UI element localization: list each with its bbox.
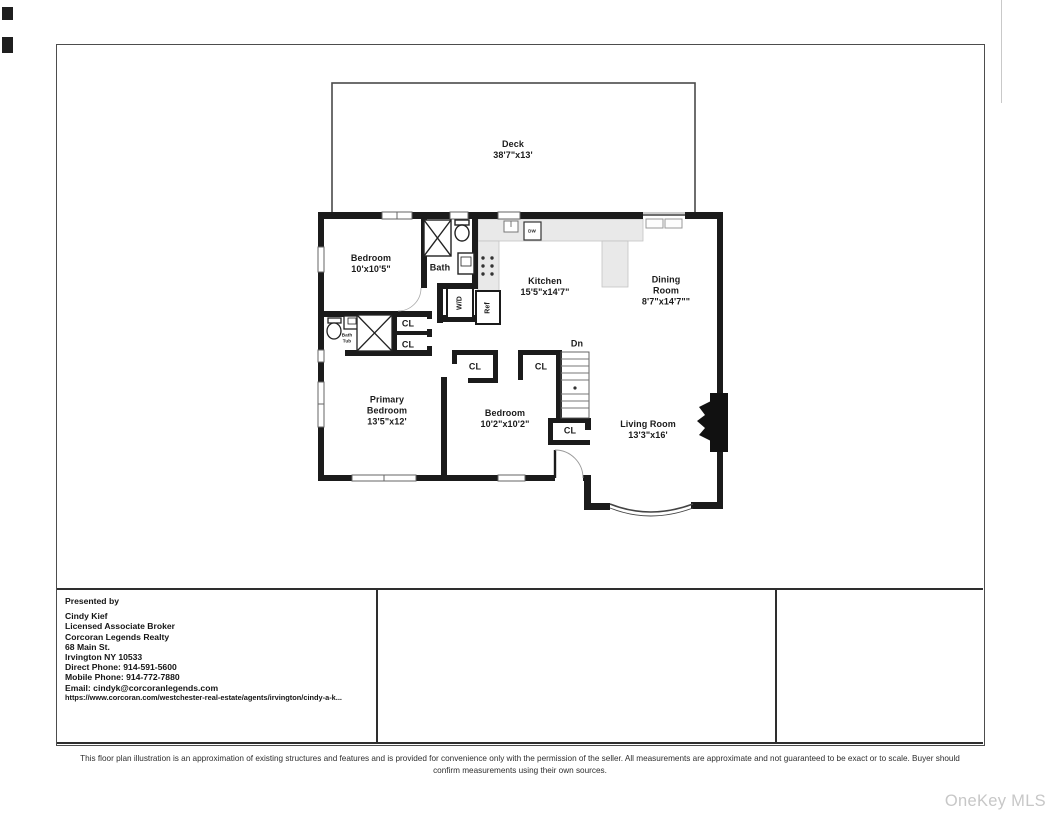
half-bath-fixtures — [327, 315, 392, 351]
bedroom1-label: Bedroom 10'x10'5" — [351, 253, 391, 275]
agent-name: Cindy Kief — [65, 611, 373, 621]
stairs-down-label: Dn — [571, 339, 583, 350]
primary-line2: Bedroom — [367, 406, 407, 417]
agent-address2: Irvington NY 10533 — [65, 652, 373, 662]
closet-label-2: CL — [402, 340, 414, 351]
agent-email: Email: cindyk@corcoranlegends.com — [65, 683, 373, 693]
disclaimer-line1: This floor plan illustration is an appro… — [56, 753, 984, 765]
fireplace — [697, 393, 728, 452]
agent-direct-phone: Direct Phone: 914-591-5600 — [65, 662, 373, 672]
agent-info-cell: Presented by Cindy Kief Licensed Associa… — [57, 588, 378, 744]
stairs — [561, 352, 589, 418]
dining-dims: 8'7"x14'7"" — [642, 297, 690, 308]
primary-dims: 13'5"x12' — [367, 417, 407, 428]
dishwasher-label: DW — [528, 226, 536, 237]
kitchen-name: Kitchen — [521, 276, 570, 287]
primary-line1: Primary — [367, 395, 407, 406]
half-bath-line1: Bath — [342, 333, 353, 339]
living-room-label: Living Room 13'3"x16' — [620, 419, 676, 441]
closet-label-5: CL — [564, 426, 576, 437]
half-bath-line2: Tub — [342, 338, 353, 344]
closet-label-3: CL — [469, 362, 481, 373]
bedroom1-dims: 10'x10'5" — [351, 264, 391, 275]
disclaimer: This floor plan illustration is an appro… — [56, 753, 984, 776]
closet-label-4: CL — [535, 362, 547, 373]
bath-label: Bath — [430, 263, 450, 274]
kitchen-label: Kitchen 15'5"x14'7" — [521, 276, 570, 298]
bedroom2-label: Bedroom 10'2"x10'2" — [481, 408, 530, 430]
title-cell: 63 Cedar Lane First Floor — [378, 588, 777, 744]
dining-line1: Dining — [642, 275, 690, 286]
agent-website: https://www.corcoran.com/westchester-rea… — [65, 693, 373, 703]
washer-dryer-label: W/D — [455, 296, 466, 310]
refrigerator-label: Ref — [483, 302, 494, 314]
bedroom2-dims: 10'2"x10'2" — [481, 419, 530, 430]
disclaimer-line2: confirm measurements using their own sou… — [56, 765, 984, 777]
dining-line2: Room — [642, 286, 690, 297]
floorplan-page: Deck 38'7"x13' Bedroom 10'x10'5" Bath Ba… — [0, 0, 1056, 816]
primary-bedroom-label: Primary Bedroom 13'5"x12' — [367, 395, 407, 428]
deck-label: Deck 38'7"x13' — [493, 139, 532, 161]
deck-dims: 38'7"x13' — [493, 150, 532, 161]
agent-company: Corcoran Legends Realty — [65, 632, 373, 642]
bedroom1-name: Bedroom — [351, 253, 391, 264]
deck-name: Deck — [493, 139, 532, 150]
page-number-cell: 1 of 2 — [777, 588, 983, 744]
half-bath-label: Bath Tub — [342, 333, 353, 344]
kitchen-dims: 15'5"x14'7" — [521, 287, 570, 298]
bay-window — [610, 504, 693, 516]
living-dims: 13'3"x16' — [620, 430, 676, 441]
agent-info: Presented by Cindy Kief Licensed Associa… — [65, 596, 373, 703]
agent-job-title: Licensed Associate Broker — [65, 621, 373, 631]
agent-address1: 68 Main St. — [65, 642, 373, 652]
onekey-mls-watermark: OneKey MLS — [942, 792, 1046, 811]
dining-label: Dining Room 8'7"x14'7"" — [642, 275, 690, 308]
agent-mobile-phone: Mobile Phone: 914-772-7880 — [65, 672, 373, 682]
bedroom2-name: Bedroom — [481, 408, 530, 419]
closet-label-1: CL — [402, 319, 414, 330]
presented-by-label: Presented by — [65, 596, 373, 606]
living-name: Living Room — [620, 419, 676, 430]
